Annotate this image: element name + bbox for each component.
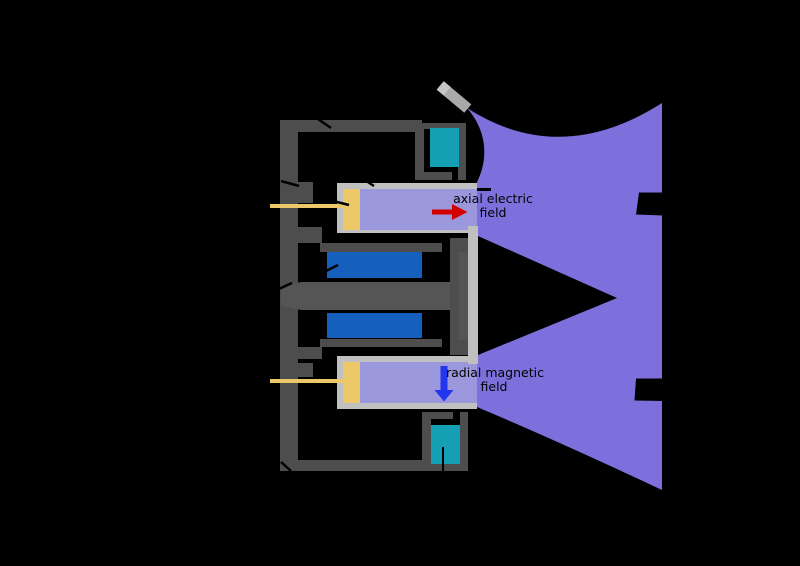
axial-electric-field-label-line1: axial electric bbox=[445, 192, 541, 206]
leader-bottom-corner bbox=[281, 462, 291, 471]
radial-magnetic-field-label: radial magnetic field bbox=[446, 366, 542, 394]
annotation-layer bbox=[0, 0, 800, 566]
hall-thruster-diagram: axial electric field radial magnetic fie… bbox=[0, 0, 800, 566]
radial-magnetic-field-label-line1: radial magnetic bbox=[446, 366, 542, 380]
radial-magnetic-field-label-line2: field bbox=[446, 380, 542, 394]
axial-electric-field-label: axial electric field bbox=[445, 192, 541, 220]
label-leader-lines bbox=[270, 119, 443, 474]
leader-channel-wall bbox=[367, 182, 374, 187]
leader-top-arm bbox=[318, 119, 331, 128]
leader-anode bbox=[333, 201, 349, 205]
axial-electric-field-label-line2: field bbox=[445, 206, 541, 220]
leader-core bbox=[270, 283, 292, 293]
leader-inner-coil bbox=[326, 265, 338, 271]
cathode-neutralizer bbox=[437, 81, 472, 113]
leader-back-plate bbox=[281, 181, 299, 186]
